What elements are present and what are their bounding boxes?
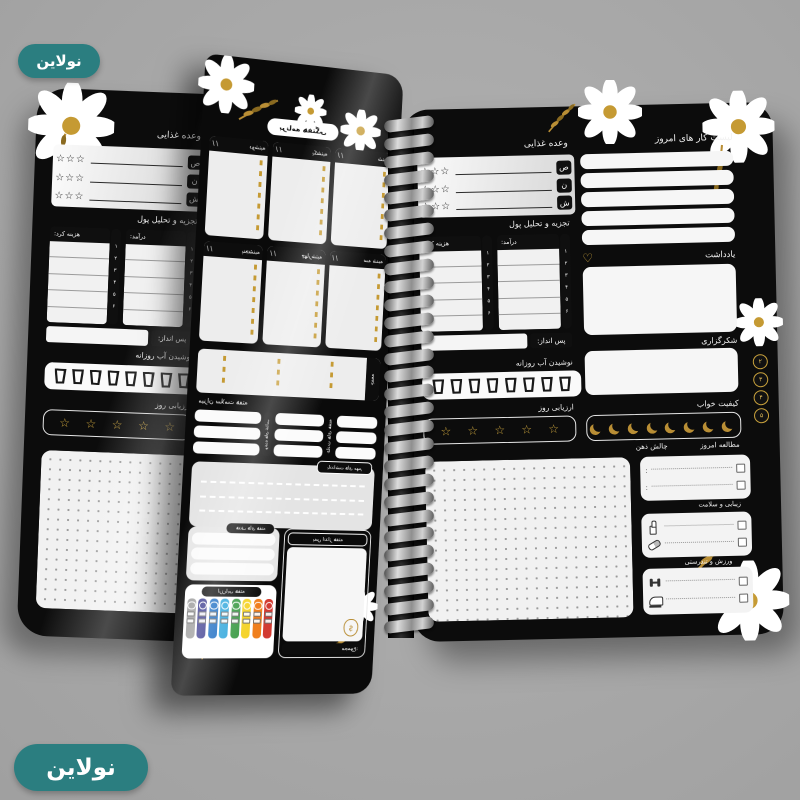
note-title: یادداشت [705,250,736,261]
crescent-moon-icon [612,420,623,431]
dot-grid-notes [425,457,634,622]
coil [383,115,434,133]
day-box: دوشنبه/ / [205,136,269,240]
money-tables: هزینه کرد: ۱ ۲ ۳ ۴ ۵ ۶ درآمد: ۱ ۲ ۳ ۴ ۵ … [419,233,572,331]
coil [383,187,434,205]
time-colon: : [646,483,649,491]
expense-table: هزینه کرد: ۱ ۲ ۳ ۴ ۵ ۶ [47,226,122,325]
page-tab: ۵ [754,408,769,423]
water-tracker [44,362,200,395]
coil [383,455,434,473]
color-rating-scale [186,598,274,638]
todo-line [580,151,733,169]
gold-dash-line [276,359,281,391]
income-header: درآمد: [497,234,559,250]
right-daily-page: وعده غذایی ☆☆☆ص ☆☆☆ن ☆☆☆ش تجزیه و تحلیل … [402,102,784,642]
star-icon: ☆ [494,424,505,436]
star-icon: ☆ [59,417,70,429]
savings-field [421,333,527,350]
meal-row: ☆☆☆ ن [55,168,202,189]
dotted-line [652,483,733,486]
rating-chip [252,599,263,638]
weekly-title-pill: برنامه هفتگی [267,118,339,142]
weekly-rating-title: ارزیابی هفته [201,586,261,596]
income-table: درآمد: ۱ ۲ ۳ ۴ ۵ ۶ [123,229,198,328]
product-photo-scene: نولاین نولاین وعده غذایی ☆☆☆ ص ☆☆☆ ن ☆☆☆… [0,0,800,800]
savings-total-label: مجموع: [282,643,362,654]
star-icon: ☆ [164,421,175,433]
crescent-moon-icon [593,421,604,432]
writing-line [89,199,181,204]
meal-label-morning: ص [556,160,571,174]
coil [383,133,434,151]
meal-section-title: وعده غذایی [157,130,201,142]
study-title: مطالعه امروز [700,441,740,450]
coil [383,240,434,258]
todo-line [581,189,734,207]
water-glass-icon [450,378,462,393]
rating-chip [186,598,197,638]
water-glass-icon [559,376,571,391]
day-box: سه شنبه/ / [325,251,386,351]
coil [383,616,434,634]
coil [383,544,434,562]
water-glass-icon [160,372,173,387]
coil [383,222,434,240]
todo-title: لیست کار های امروز [655,133,733,145]
tracker-rows [273,413,324,458]
coil [383,598,434,616]
money-bag-icon: $ [343,619,359,636]
row-numbers-strip: ۱ ۲ ۳ ۴ ۵ ۶ [560,233,572,328]
star-icons: ☆☆☆ [55,173,85,184]
shoe-icon [648,593,662,607]
crescent-moon-icon [725,418,736,429]
savings-row: پس انداز: [421,332,572,350]
water-glass-icon [72,369,85,384]
day-rating-title: ارزیابی روز [538,402,573,412]
day-name: یکشنبه [312,150,328,157]
dashed-line [199,510,363,516]
meal-rating-box: ☆☆☆ص ☆☆☆ن ☆☆☆ش [417,154,575,218]
rating-chip [241,599,252,638]
water-glass-icon [541,376,553,391]
rating-chip [219,599,230,638]
sleep-quality-title: کیفیت خواب [697,399,739,409]
important-notes-pill: یادداشت های مهم [317,461,373,475]
date-slashes: / / [207,246,213,252]
date-slashes: / / [332,255,338,261]
dumbbell-icon [648,576,662,590]
page-tab: ۳ [753,372,768,387]
dotted-line [665,540,734,543]
coil [383,401,434,419]
spiral-binding [384,118,434,637]
savings-label: پس انداز: [151,330,194,348]
rating-chip [263,599,274,638]
day-box: چهارشنبه/ / [263,246,326,348]
brand-badge-top: نولاین [18,44,100,78]
gold-dash-line [313,269,320,342]
goal-row [191,547,276,560]
meal-section-title: وعده غذایی [524,139,568,150]
coil [383,169,434,187]
water-tracker-title: نوشیدن آب روزانه [516,357,573,367]
date-slashes: / / [270,250,276,256]
money-tables: هزینه کرد: ۱ ۲ ۳ ۴ ۵ ۶ درآمد: ۱ ۲ ۳ ۴ ۵ … [47,226,198,328]
gold-dash-line [329,362,333,393]
todo-line [581,208,734,226]
coil [383,491,434,509]
coil [383,151,434,169]
week-day-grid: شنبه/ / یکشنبه/ / دوشنبه/ / سه شنبه/ / چ… [199,136,392,351]
coil [383,258,434,276]
star-icon: ☆ [112,419,123,431]
page-tab: ۴ [753,390,768,405]
flipping-weekly-page: برنامه هفتگی شنبه/ / یکشنبه/ / دوشنبه/ /… [171,53,404,695]
water-tracker [422,370,582,400]
leaf-sprig-icon [538,94,586,142]
meal-row: ☆☆☆ ص [56,150,203,171]
water-glass-icon [468,378,480,393]
weekly-health-section: عادت های هفته وعده های غذایی [193,409,378,459]
crescent-moon-icon [631,420,642,431]
star-icon: ☆ [138,420,149,432]
coil [383,294,434,312]
lipstick-icon [646,520,660,534]
fitness-box [642,566,753,614]
checkbox [739,576,748,585]
beauty-box [641,511,752,557]
crescent-moon-icon [668,419,679,430]
gratitude-box [585,348,739,395]
date-slashes: / / [338,152,344,158]
sleep-tracker [586,412,742,442]
day-rating-box: ☆ ☆ ☆ ☆ ☆ [423,415,577,444]
page-tab: ۲ [753,354,768,369]
water-glass-icon [432,379,444,394]
coil [383,365,434,383]
water-glass-icon [107,370,120,385]
rating-chip [230,599,241,638]
weekly-goals-title: هدف های هفته [227,523,275,534]
day-name: سه شنبه [363,258,383,265]
savings-area: $ [283,547,367,641]
money-section-title: تجزیه و تحلیل پول [137,214,198,225]
study-box: : : [640,454,751,500]
water-glass-icon [142,372,155,387]
checkbox [737,521,746,530]
checkbox [739,594,748,603]
gold-dash-line [221,356,226,388]
water-glass-icon [125,371,138,386]
writing-line [91,163,183,168]
water-tracker-title: نوشیدن آب روزانه [135,350,192,361]
savings-field [46,326,149,346]
money-section-title: تجزیه و تحلیل پول [509,218,570,228]
mind-challenge-title: چالش ذهن [636,442,668,451]
crescent-moon-icon [687,419,698,430]
gratitude-title: شکرگزاری [701,336,737,346]
water-glass-icon [505,377,517,392]
weekly-savings-box: پس انداز هفته $ مجموع: [278,528,371,658]
pill-icon [647,537,661,551]
savings-row: پس انداز: [46,326,194,348]
goals-and-rating: هدف های هفته ارزیابی هفته [181,526,280,658]
coil [383,204,434,222]
fitness-title: ورزش و تندرستی [684,557,732,566]
coil [383,312,434,330]
table-rows [123,244,186,327]
mirrored-print-content: برنامه هفتگی شنبه/ / یکشنبه/ / دوشنبه/ /… [171,53,404,695]
dotted-line [664,523,733,526]
gold-dash-line [251,265,258,339]
dot-grid-notes [36,450,194,614]
tracker-rows [335,416,378,460]
checkbox [736,464,745,473]
coil [383,509,434,527]
gold-dash-line [319,166,326,239]
day-name: پنجشنبه [242,248,260,255]
coil [383,437,434,455]
coil [383,473,434,491]
page-number-tabs: ۲ ۳ ۴ ۵ [753,354,770,423]
note-box [583,264,738,335]
goal-row [192,532,277,546]
gold-dash-line [256,160,263,234]
income-table: درآمد: ۱ ۲ ۳ ۴ ۵ ۶ [497,233,572,330]
table-rows [497,249,560,330]
row-numbers-strip: ۱ ۲ ۳ ۴ ۵ ۶ [108,228,122,324]
day-box: یکشنبه/ / [268,142,331,245]
meal-rating-box: ☆☆☆ ص ☆☆☆ ن ☆☆☆ ش [51,144,206,212]
coil [383,276,434,294]
star-icons: ☆☆☆ [56,155,86,166]
dotted-line [666,579,735,582]
todo-line [580,170,733,188]
dashed-line [201,480,365,487]
beauty-health-title: زیبایی و سلامت [698,500,741,509]
meal-row: ☆☆☆ ش [54,186,201,207]
day-box: شنبه/ / [330,148,391,249]
table-rows [47,241,110,324]
meal-label-noon: ن [557,178,572,192]
weekly-savings-title: پس انداز هفته [288,532,368,546]
coil [383,419,434,437]
day-name: دوشنبه [249,144,265,151]
date-slashes: / / [276,146,282,152]
dotted-line [666,597,735,600]
day-rating-box: ☆ ☆ ☆ ☆ ☆ [42,409,192,441]
todo-line [582,227,735,245]
water-glass-icon [89,370,102,385]
habit-strip-label: عادت های هفته [326,419,333,454]
date-slashes: / / [212,140,218,146]
friday-label: جمعه [370,373,376,385]
crescent-moon-icon [706,418,717,429]
water-glass-icon [523,377,535,392]
friday-box: جمعه [196,348,381,401]
goal-row [190,562,275,575]
star-icon: ☆ [85,418,96,430]
day-box: پنجشنبه/ / [199,241,263,344]
meal-label-dinner: ش [557,196,572,210]
water-glass-icon [54,368,67,383]
star-icon: ☆ [440,425,451,437]
weekly-goals-box: هدف های هفته [186,526,281,581]
coil [383,562,434,580]
time-colon: : [645,466,648,474]
star-icon: ☆ [521,423,532,435]
weekly-rating-box: ارزیابی هفته [181,584,277,658]
crescent-moon-icon [650,419,661,430]
coil [383,348,434,366]
rating-chip [208,599,219,638]
row-numbers-strip: ۱ ۲ ۳ ۴ ۵ ۶ [482,235,494,330]
day-name: چهارشنبه [301,253,322,260]
coil [383,330,434,348]
heart-icon: ♡ [582,252,593,264]
coil [383,383,434,401]
flower-icon [734,298,783,347]
dotted-line [652,466,733,469]
tracker-rows [193,409,262,455]
checkbox [737,481,746,490]
writing-line [90,181,182,186]
health-section-title: میزان سلامت هفته [198,396,248,406]
weekly-bottom-row: پس انداز هفته $ مجموع: هدف های هفته ارزی… [181,526,371,658]
rating-chip [197,598,208,637]
star-icons: ☆☆☆ [54,191,84,202]
coil [383,580,434,598]
meal-strip-label: وعده های غذایی [264,419,270,449]
savings-label: پس انداز: [530,332,572,348]
star-icon: ☆ [548,423,559,435]
dashed-line [200,495,364,501]
checkbox [738,538,747,547]
star-icon: ☆ [467,425,478,437]
gold-dash-line [374,274,381,346]
brand-badge-bottom: نولاین [14,744,148,791]
coil [383,526,434,544]
water-glass-icon [487,378,499,393]
